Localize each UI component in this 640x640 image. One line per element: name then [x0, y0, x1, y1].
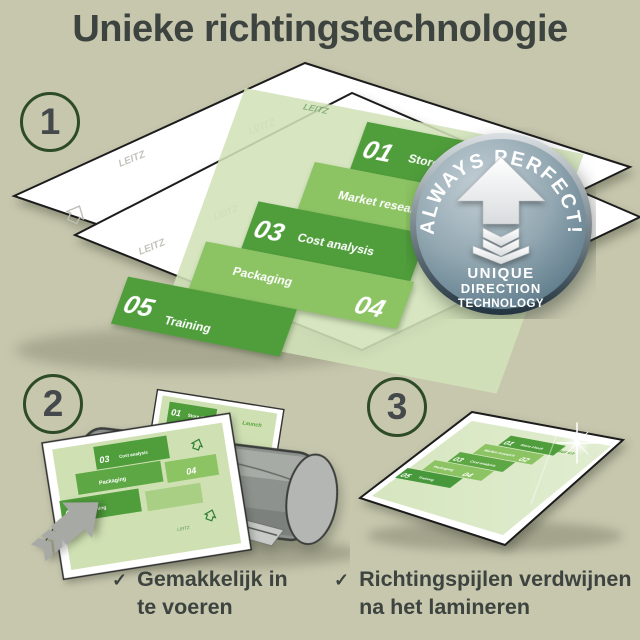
step-1-number: 1 [20, 92, 80, 152]
step-2-number: 2 [23, 374, 83, 434]
bullet-line2: na het lamineren [359, 593, 631, 621]
check-icon: ✓ [112, 566, 127, 621]
badge-line3: TECHNOLOGY [458, 298, 544, 310]
badge-line2: DIRECTION [461, 281, 542, 296]
bullet-line1: Gemakkelijk in [137, 565, 288, 593]
bullet-line2: te voeren [137, 593, 288, 621]
bullet-arrows-disappear: ✓ Richtingspijlen verdwijnen na het lami… [334, 565, 631, 621]
bullet-easy-feed: ✓ Gemakkelijk in te voeren [112, 565, 288, 621]
step-3-number: 3 [367, 377, 427, 437]
page-title: Unieke richtingstechnologie [0, 8, 640, 51]
mini-number: 03 [99, 454, 110, 465]
check-icon: ✓ [334, 566, 349, 621]
always-perfect-badge: ALWAYS PERFECT! UNIQUE DIRECTION TECHNOL… [406, 127, 596, 319]
badge-line1: UNIQUE [467, 265, 534, 282]
poster: Unieke richtingstechnologie LEITZ LEITZ … [0, 0, 640, 640]
bullet-line1: Richtingspijlen verdwijnen [359, 565, 631, 593]
mini-number: 01 [170, 407, 181, 418]
mini-number: 04 [185, 465, 196, 476]
